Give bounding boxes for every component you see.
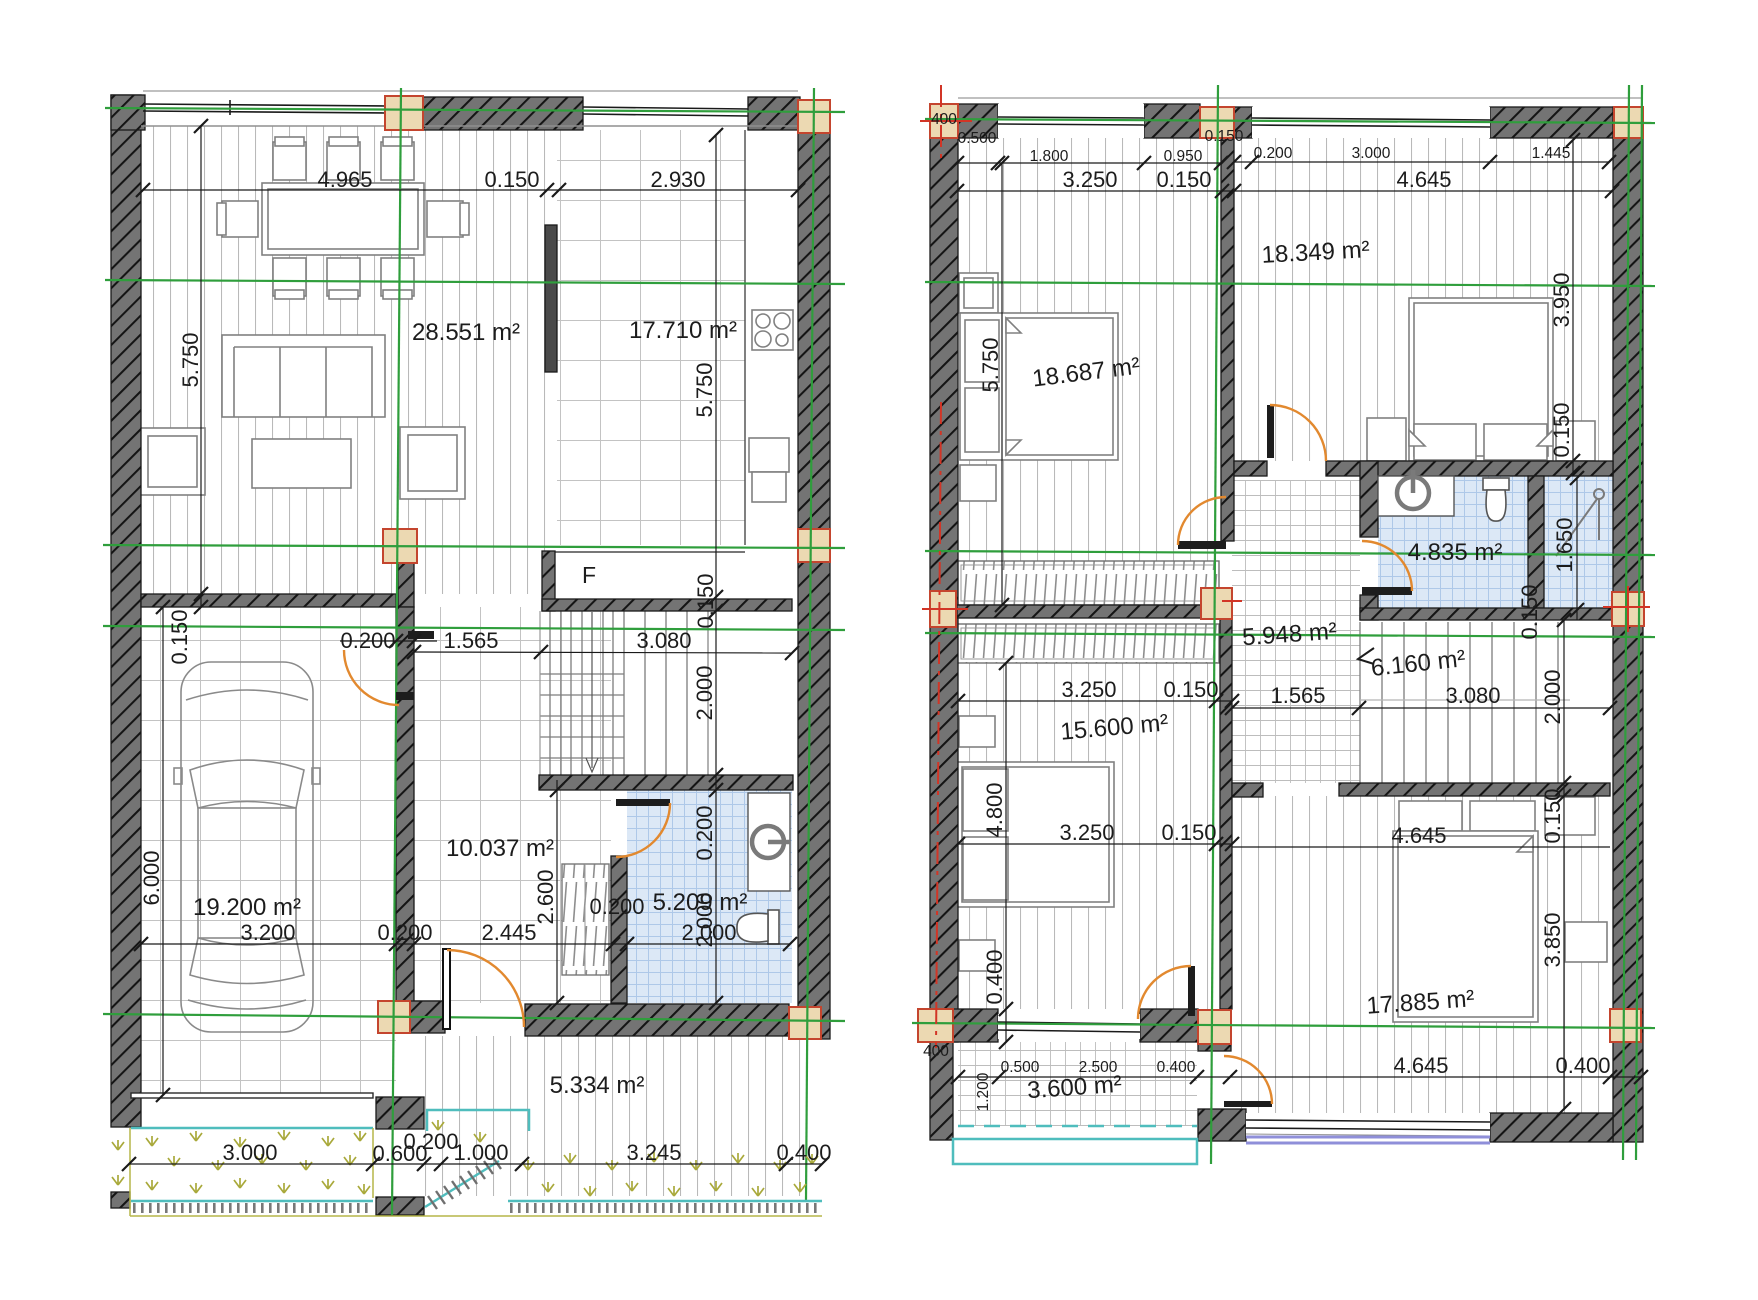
svg-text:4.645: 4.645 <box>1391 823 1446 848</box>
svg-text:3.080: 3.080 <box>1445 683 1500 708</box>
svg-text:1.200: 1.200 <box>975 1072 992 1111</box>
svg-text:17.710 m²: 17.710 m² <box>629 317 737 344</box>
svg-text:4.800: 4.800 <box>982 782 1007 837</box>
svg-text:0.150: 0.150 <box>1549 402 1574 457</box>
svg-text:0.200: 0.200 <box>589 894 644 919</box>
svg-text:0.200: 0.200 <box>377 920 432 945</box>
svg-text:0.150: 0.150 <box>693 573 718 628</box>
svg-text:3.080: 3.080 <box>636 628 691 653</box>
svg-text:5.334 m²: 5.334 m² <box>550 1072 645 1099</box>
svg-text:2.000: 2.000 <box>681 920 736 945</box>
svg-text:19.200 m²: 19.200 m² <box>193 894 301 921</box>
svg-text:3.245: 3.245 <box>626 1140 681 1165</box>
svg-text:0.400: 0.400 <box>776 1140 831 1165</box>
svg-text:3.250: 3.250 <box>1061 677 1116 702</box>
svg-text:F: F <box>582 562 596 588</box>
svg-text:4.645: 4.645 <box>1393 1053 1448 1078</box>
svg-text:0.200: 0.200 <box>340 628 395 653</box>
svg-text:0.200: 0.200 <box>692 805 717 860</box>
svg-text:0.400: 0.400 <box>1157 1059 1196 1076</box>
svg-text:4.965: 4.965 <box>317 167 372 192</box>
svg-text:1.000: 1.000 <box>453 1140 508 1165</box>
svg-text:5.750: 5.750 <box>978 337 1003 392</box>
svg-text:3.000: 3.000 <box>1352 145 1391 162</box>
svg-text:3.000: 3.000 <box>222 1140 277 1165</box>
svg-text:2.000: 2.000 <box>692 665 717 720</box>
svg-text:0.150: 0.150 <box>1205 128 1244 145</box>
svg-text:3.200: 3.200 <box>240 920 295 945</box>
svg-text:3.250: 3.250 <box>1059 820 1114 845</box>
svg-text:400: 400 <box>923 1043 949 1060</box>
svg-text:5.750: 5.750 <box>178 332 203 387</box>
svg-text:2.930: 2.930 <box>650 167 705 192</box>
svg-text:28.551 m²: 28.551 m² <box>412 319 520 346</box>
svg-text:0.150: 0.150 <box>1517 584 1542 639</box>
svg-text:400: 400 <box>931 111 957 128</box>
svg-text:0.200: 0.200 <box>403 1129 458 1154</box>
svg-text:6.000: 6.000 <box>139 850 164 905</box>
svg-text:4.645: 4.645 <box>1396 167 1451 192</box>
svg-text:5.209 m²: 5.209 m² <box>653 889 748 916</box>
svg-text:3.850: 3.850 <box>1540 912 1565 967</box>
svg-text:0.400: 0.400 <box>1555 1053 1610 1078</box>
svg-text:0.150: 0.150 <box>484 167 539 192</box>
svg-text:0.500: 0.500 <box>1001 1059 1040 1076</box>
svg-text:1.800: 1.800 <box>1030 148 1069 165</box>
svg-text:0.200: 0.200 <box>1254 145 1293 162</box>
svg-text:0.150: 0.150 <box>1161 820 1216 845</box>
svg-text:2.445: 2.445 <box>481 920 536 945</box>
svg-text:1.565: 1.565 <box>1270 683 1325 708</box>
svg-text:2.600: 2.600 <box>533 869 558 924</box>
svg-text:1.565: 1.565 <box>443 628 498 653</box>
svg-text:0.150: 0.150 <box>1163 677 1218 702</box>
svg-text:10.037 m²: 10.037 m² <box>446 835 554 862</box>
svg-text:0.150: 0.150 <box>1540 788 1565 843</box>
svg-text:0.950: 0.950 <box>1164 148 1203 165</box>
svg-text:3.950: 3.950 <box>1549 272 1574 327</box>
svg-text:0.150: 0.150 <box>1156 167 1211 192</box>
svg-text:0.500: 0.500 <box>958 130 997 147</box>
svg-text:1.445: 1.445 <box>1532 145 1571 162</box>
svg-text:2.000: 2.000 <box>1540 669 1565 724</box>
svg-text:1.650: 1.650 <box>1552 517 1577 572</box>
svg-text:0.400: 0.400 <box>982 949 1007 1004</box>
svg-text:4.835 m²: 4.835 m² <box>1408 539 1503 566</box>
svg-text:5.750: 5.750 <box>692 362 717 417</box>
svg-text:3.250: 3.250 <box>1062 167 1117 192</box>
svg-text:0.150: 0.150 <box>167 609 192 664</box>
svg-text:18.349 m²: 18.349 m² <box>1261 236 1370 269</box>
